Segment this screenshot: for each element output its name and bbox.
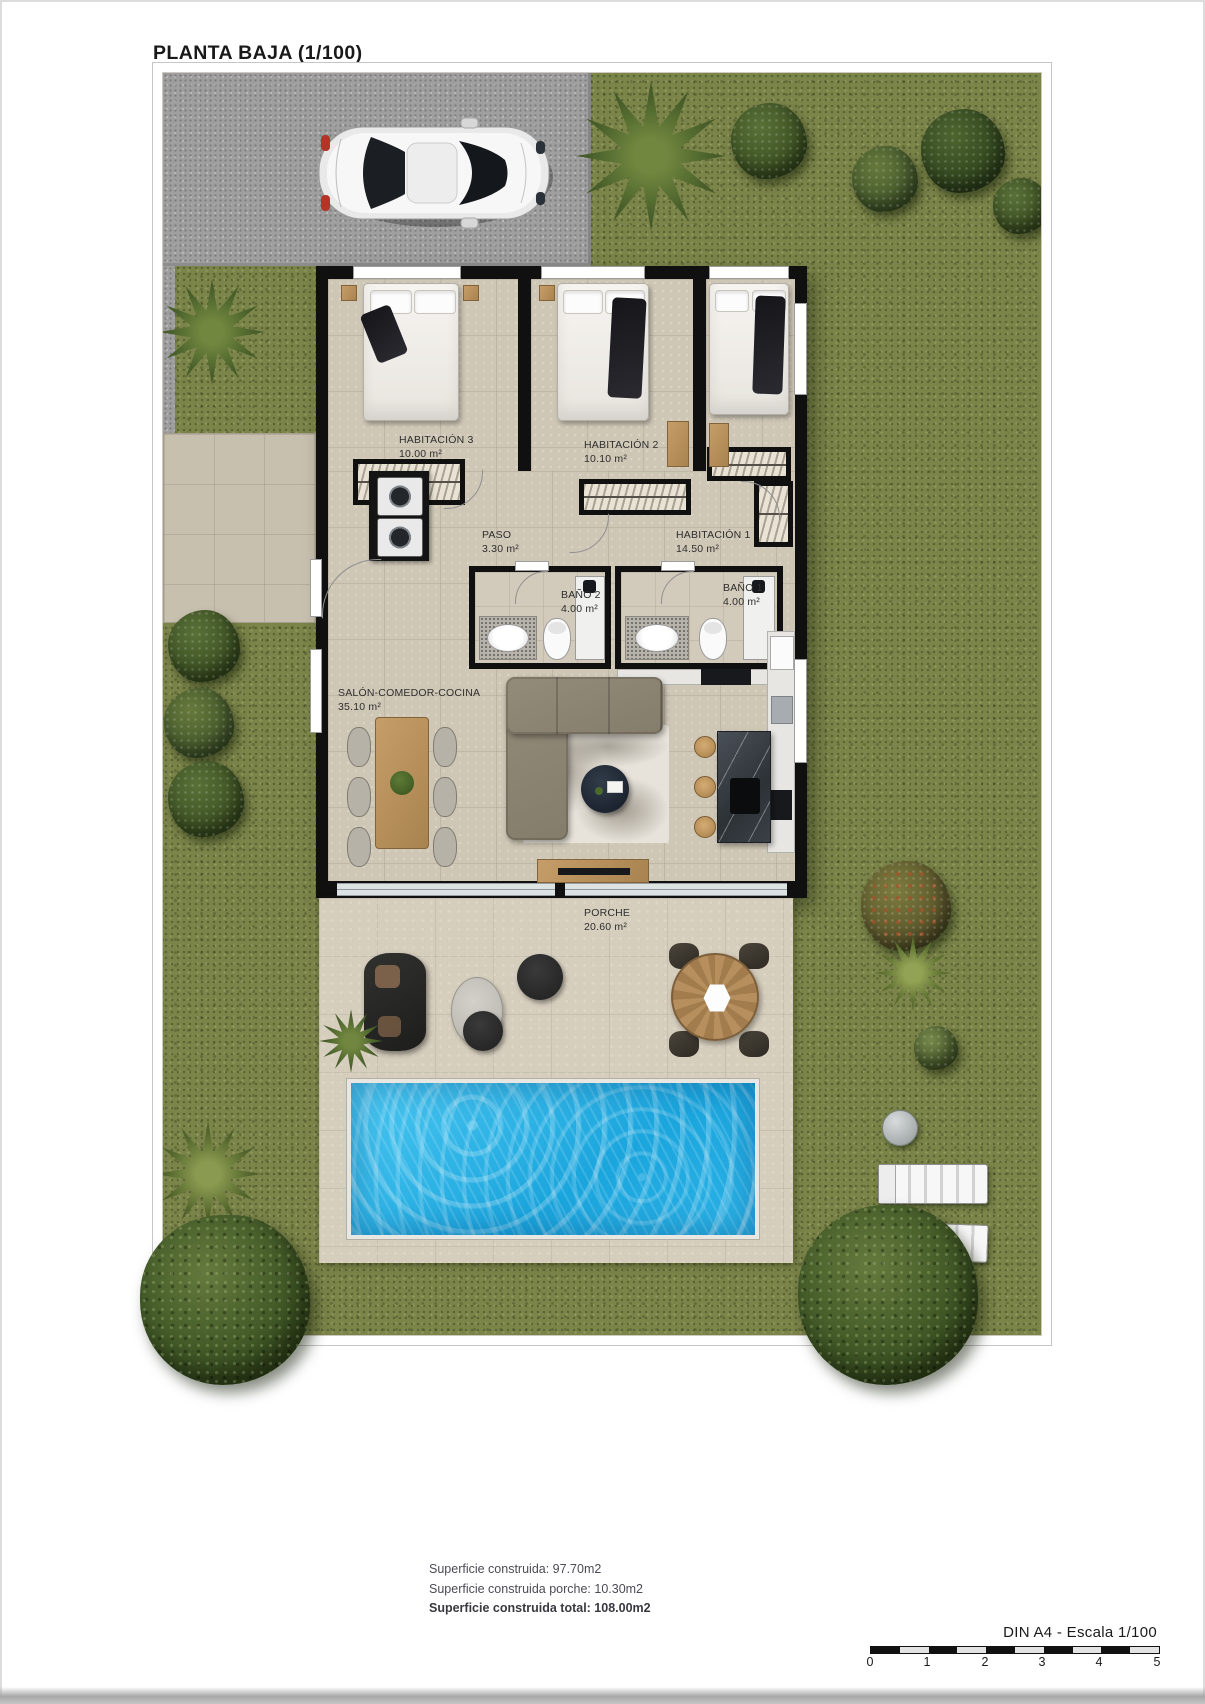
dresser — [709, 423, 729, 467]
kitchen-island — [717, 731, 771, 843]
toilet — [543, 618, 571, 660]
laundry-closet — [369, 471, 429, 561]
palm-tree — [162, 1121, 261, 1227]
sink — [635, 624, 679, 652]
bush — [993, 178, 1042, 234]
fridge — [770, 636, 794, 670]
sliding-glass-door — [337, 883, 555, 896]
tree — [798, 1205, 978, 1385]
scale-tick: 4 — [1091, 1655, 1107, 1669]
room-area: 20.60 m² — [584, 921, 630, 935]
bar-stool — [694, 816, 716, 838]
room-name: PORCHE — [584, 907, 630, 921]
side-path — [163, 266, 175, 433]
dining-chair — [347, 777, 371, 817]
bed — [557, 283, 649, 421]
bed — [709, 283, 789, 415]
summary-line: Superficie construida porche: 10.30m2 — [429, 1580, 651, 1600]
palm-tree — [576, 81, 726, 231]
scale-tick: 5 — [1149, 1655, 1165, 1669]
floor-plan-area: HABITACIÓN 3 10.00 m² HABITACIÓN 2 10.10… — [162, 72, 1042, 1336]
bed — [363, 283, 459, 421]
room-label-porche: PORCHE 20.60 m² — [584, 907, 630, 934]
room-label-habitacion-1: HABITACIÓN 1 14.50 m² — [676, 529, 751, 556]
outdoor-pouf — [463, 1011, 503, 1051]
bush — [168, 610, 240, 682]
sofa — [506, 677, 663, 734]
scale-tick: 3 — [1034, 1655, 1050, 1669]
car-top-view — [311, 113, 557, 233]
room-area: 4.00 m² — [723, 596, 763, 610]
bush — [921, 109, 1005, 193]
toilet — [699, 618, 727, 660]
bush — [164, 688, 234, 758]
bush — [731, 103, 807, 179]
dining-chair — [347, 727, 371, 767]
nightstand — [463, 285, 479, 301]
tv-bench — [537, 859, 649, 883]
dining-chair — [433, 727, 457, 767]
table-plant — [390, 771, 414, 795]
room-area: 10.00 m² — [399, 448, 474, 462]
tree — [140, 1215, 310, 1385]
sliding-glass-door — [565, 883, 787, 896]
outdoor-sofa — [364, 953, 426, 1051]
room-name: HABITACIÓN 2 — [584, 439, 659, 453]
patio-chair — [739, 1031, 769, 1057]
room-label-salon: SALÓN-COMEDOR-COCINA 35.10 m² — [338, 687, 480, 714]
window — [353, 266, 461, 279]
scale-tick: 0 — [862, 1655, 878, 1669]
room-label-bano-2: BAÑO 2 4.00 m² — [561, 589, 601, 616]
room-area: 4.00 m² — [561, 603, 601, 617]
kitchen-sink — [771, 696, 793, 724]
scale-tick: 2 — [977, 1655, 993, 1669]
room-area: 14.50 m² — [676, 543, 751, 557]
coffee-table — [581, 765, 629, 813]
garden-table — [882, 1110, 918, 1146]
nightstand — [539, 285, 555, 301]
room-name: HABITACIÓN 1 — [676, 529, 751, 543]
nightstand — [341, 285, 357, 301]
table-centerpiece — [703, 983, 731, 1013]
kitchen-counter — [767, 631, 795, 853]
room-label-bano-1: BAÑO 1 4.00 m² — [723, 582, 763, 609]
book — [607, 781, 623, 793]
scale-label: DIN A4 - Escala 1/100 — [1003, 1624, 1157, 1641]
sink — [487, 624, 529, 652]
sun-lounger — [878, 1164, 988, 1204]
kitchen-range — [701, 669, 751, 685]
dining-chair — [347, 827, 371, 867]
dining-chair — [433, 777, 457, 817]
summary-line: Superficie construida: 97.70m2 — [429, 1560, 651, 1580]
bush — [914, 1026, 958, 1070]
window — [794, 659, 807, 763]
dining-chair — [433, 827, 457, 867]
palm-tree — [162, 279, 265, 385]
swimming-pool — [347, 1079, 759, 1239]
patio-table — [671, 953, 759, 1041]
summary-line-total: Superficie construida total: 108.00m2 — [429, 1599, 651, 1619]
room-name: SALÓN-COMEDOR-COCINA — [338, 687, 480, 701]
bush — [852, 146, 918, 212]
window — [310, 649, 322, 733]
bush — [168, 761, 244, 837]
room-label-habitacion-3: HABITACIÓN 3 10.00 m² — [399, 434, 474, 461]
page-bottom-edge — [0, 1687, 1205, 1704]
island-hob — [730, 778, 760, 814]
bar-stool — [694, 776, 716, 798]
entry-courtyard — [163, 433, 316, 623]
door-opening — [515, 561, 549, 571]
oven — [770, 790, 792, 820]
room-area: 10.10 m² — [584, 453, 659, 467]
bush — [861, 861, 951, 951]
bedroom-bench — [667, 421, 689, 467]
scale-tick: 1 — [919, 1655, 935, 1669]
room-area: 3.30 m² — [482, 543, 519, 557]
outdoor-pouf — [517, 954, 563, 1000]
area-summary: Superficie construida: 97.70m2 Superfici… — [429, 1560, 651, 1619]
table-plant — [595, 787, 603, 795]
room-name: HABITACIÓN 3 — [399, 434, 474, 448]
tv — [558, 868, 630, 875]
room-name: BAÑO 1 — [723, 582, 763, 596]
plan-sheet: PLANTA BAJA (1/100) — [0, 0, 1205, 1704]
entry-door-opening — [310, 559, 322, 617]
room-label-habitacion-2: HABITACIÓN 2 10.10 m² — [584, 439, 659, 466]
room-name: BAÑO 2 — [561, 589, 601, 603]
room-name: PASO — [482, 529, 519, 543]
door-opening — [661, 561, 695, 571]
window — [709, 266, 789, 279]
room-area: 35.10 m² — [338, 701, 480, 715]
bar-stool — [694, 736, 716, 758]
washing-machine — [377, 477, 423, 516]
wardrobe — [579, 479, 691, 515]
room-label-paso: PASO 3.30 m² — [482, 529, 519, 556]
window — [541, 266, 645, 279]
dryer-machine — [377, 518, 423, 557]
scale-bar — [870, 1646, 1160, 1654]
window — [794, 303, 807, 395]
